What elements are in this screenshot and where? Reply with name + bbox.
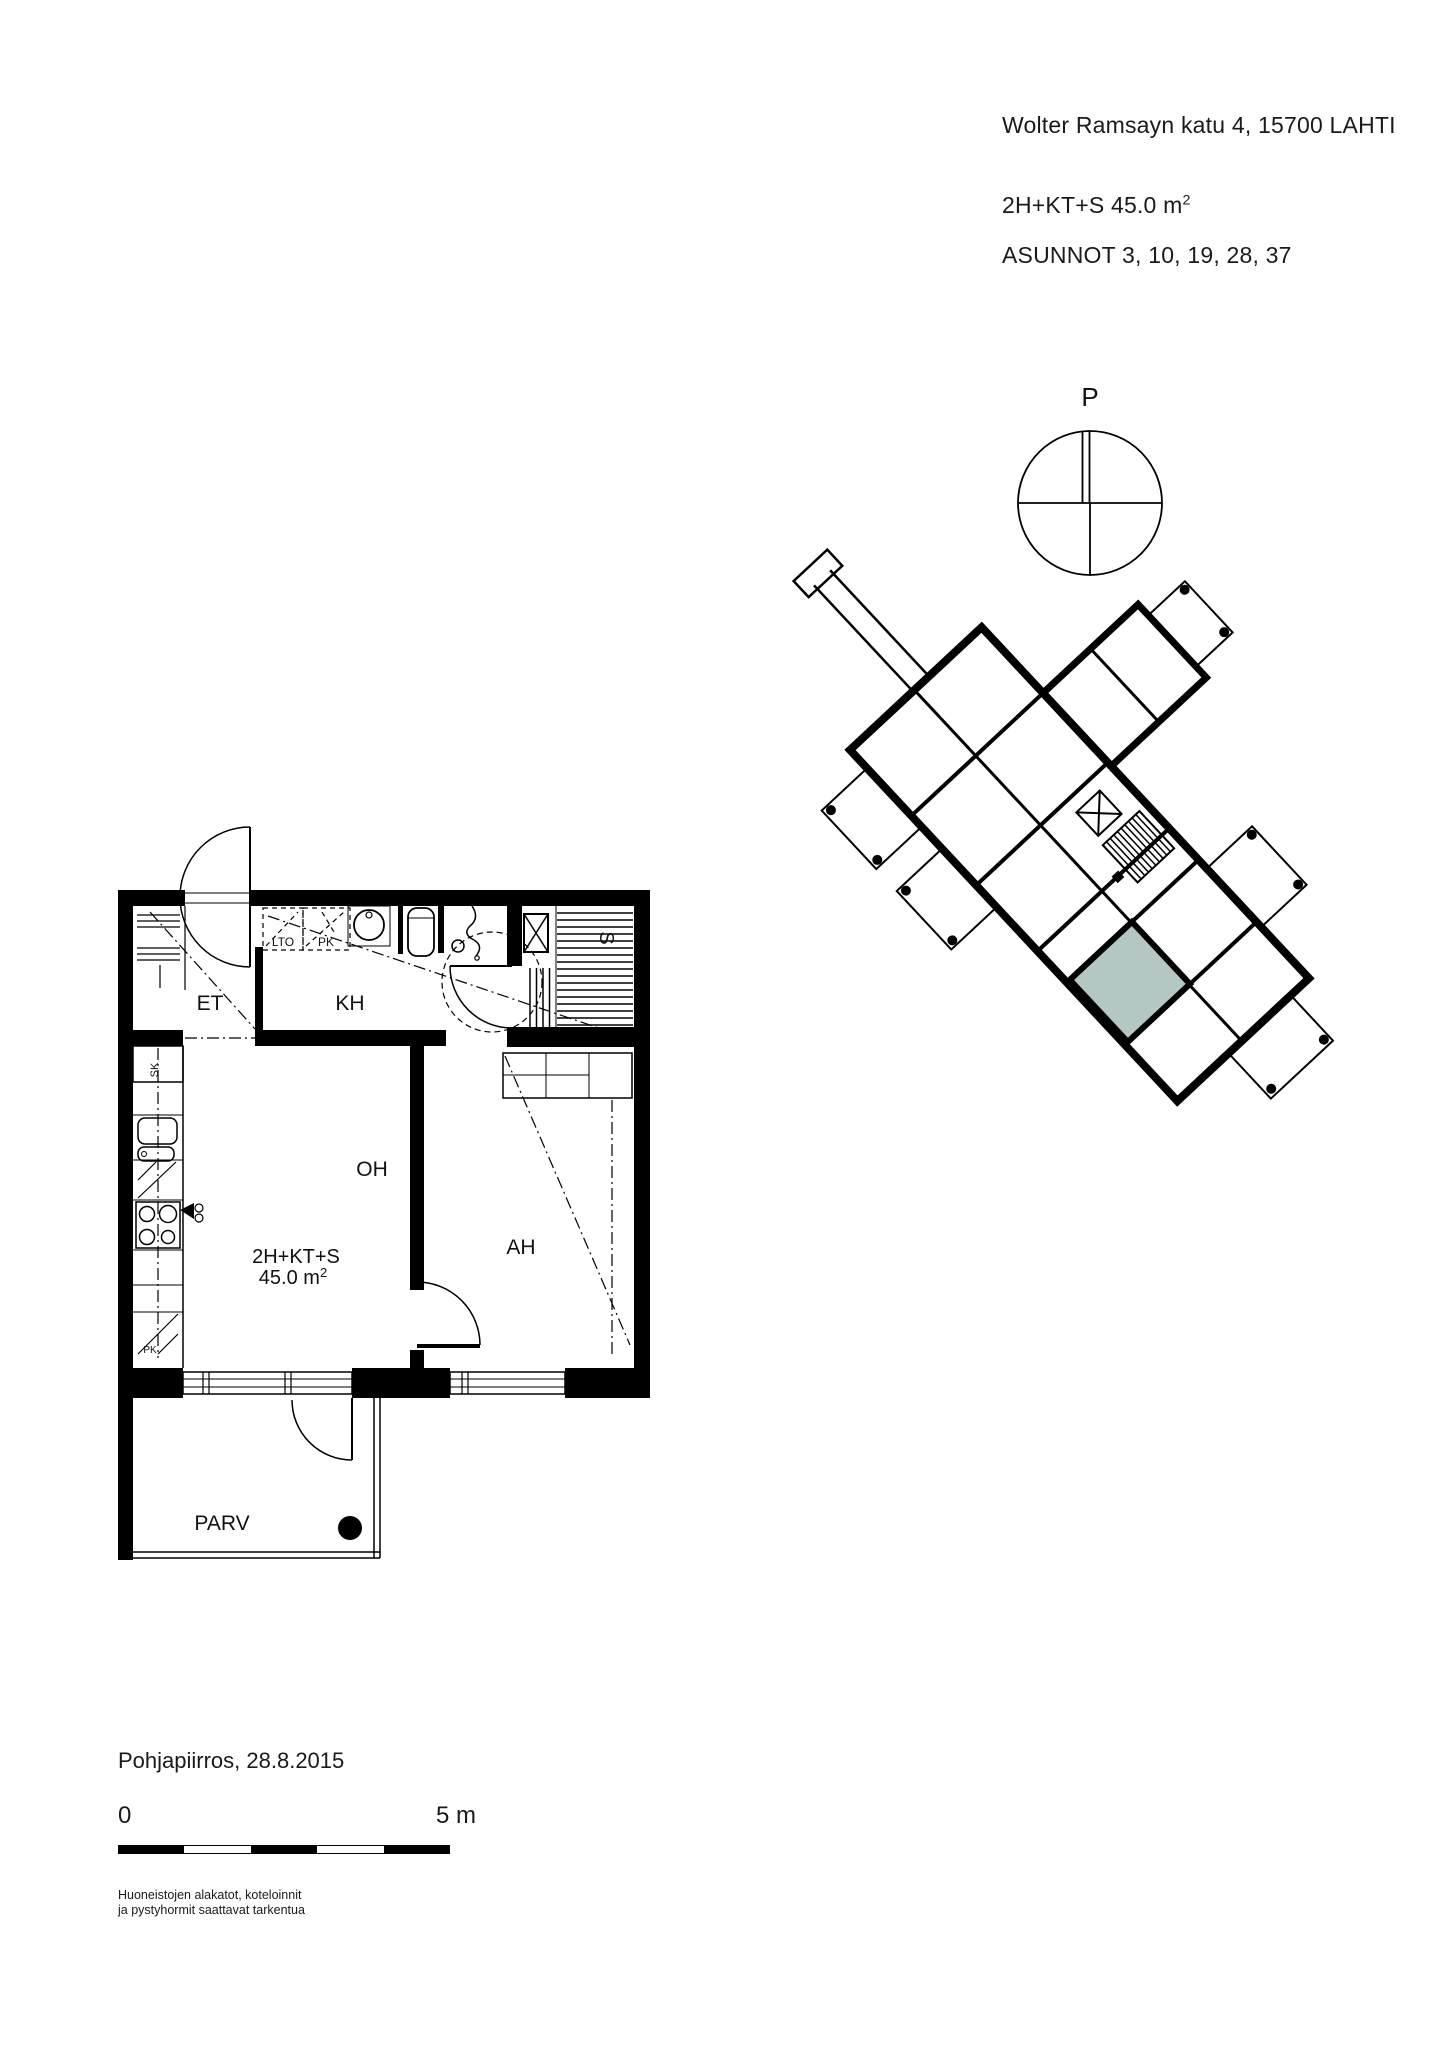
- disclaimer-line-1: Huoneistojen alakatot, koteloinnit: [118, 1888, 305, 1903]
- drawing-title: Pohjapiirros, 28.8.2015: [118, 1748, 344, 1774]
- scale-end-label: 5 m: [436, 1802, 476, 1830]
- label-balcony: PARV: [194, 1512, 249, 1535]
- bedroom-window: [450, 1372, 565, 1394]
- label-entry: ET: [197, 992, 224, 1015]
- kitchen: [133, 1046, 203, 1368]
- scale-bar-segment: [317, 1845, 383, 1854]
- wardrobe: [503, 1053, 632, 1098]
- label-sauna: S: [595, 931, 617, 944]
- washbasin: [354, 910, 384, 940]
- scale-bar-segment: [251, 1845, 317, 1854]
- site-wing-connector: [794, 550, 940, 702]
- label-lto: LTO: [272, 935, 294, 949]
- label-pk: PK: [318, 935, 334, 949]
- area-label: 2H+KT+S 45.0 m2: [252, 1246, 340, 1289]
- center-lines: [150, 912, 640, 1358]
- floor-plan-sheet: Wolter Ramsayn katu 4, 15700 LAHTI 2H+KT…: [0, 0, 1440, 2060]
- living-room-window: [183, 1372, 352, 1394]
- balcony: [133, 1398, 380, 1558]
- compass-rose: P: [1018, 382, 1162, 575]
- area-size: 45.0 m2: [259, 1265, 327, 1289]
- sauna-benches: [557, 913, 633, 1045]
- closet-labels: LTO PK SK PK: [143, 935, 334, 1356]
- label-bedroom: AH: [506, 1236, 535, 1259]
- bathroom-door: [450, 966, 512, 1028]
- scale-start-label: 0: [118, 1802, 131, 1830]
- disclaimer-line-2: ja pystyhormit saattavat tarkentua: [118, 1903, 305, 1918]
- shower-curtain: [467, 906, 480, 956]
- entry-door: [180, 827, 251, 967]
- disclaimer-note: Huoneistojen alakatot, koteloinnit ja py…: [118, 1888, 305, 1918]
- label-sk: SK: [149, 1062, 161, 1077]
- scale-bar-segment: [384, 1845, 450, 1854]
- label-living: OH: [356, 1158, 388, 1181]
- scale-bar-segment: [118, 1845, 184, 1854]
- scale-bar: [118, 1845, 450, 1854]
- balcony-door: [292, 1400, 352, 1460]
- bedroom-door: [417, 1282, 480, 1346]
- sauna: [524, 906, 633, 1047]
- toilet: [408, 908, 434, 956]
- site-plan-overview: [694, 386, 1440, 1189]
- kitchen-sink-drainer: [138, 1147, 174, 1161]
- dishwasher-reservation: [138, 1162, 176, 1198]
- label-pk-kitchen: PK: [143, 1345, 157, 1356]
- north-label: P: [1081, 382, 1098, 412]
- balcony-column: [338, 1516, 362, 1540]
- scale-bar-segment: [184, 1845, 250, 1854]
- label-bathroom: KH: [335, 992, 364, 1015]
- apartment-floor-plan: ET KH OH AH PARV S LTO PK SK PK 2H+KT+S …: [118, 827, 650, 1560]
- coat-rack: [137, 906, 185, 990]
